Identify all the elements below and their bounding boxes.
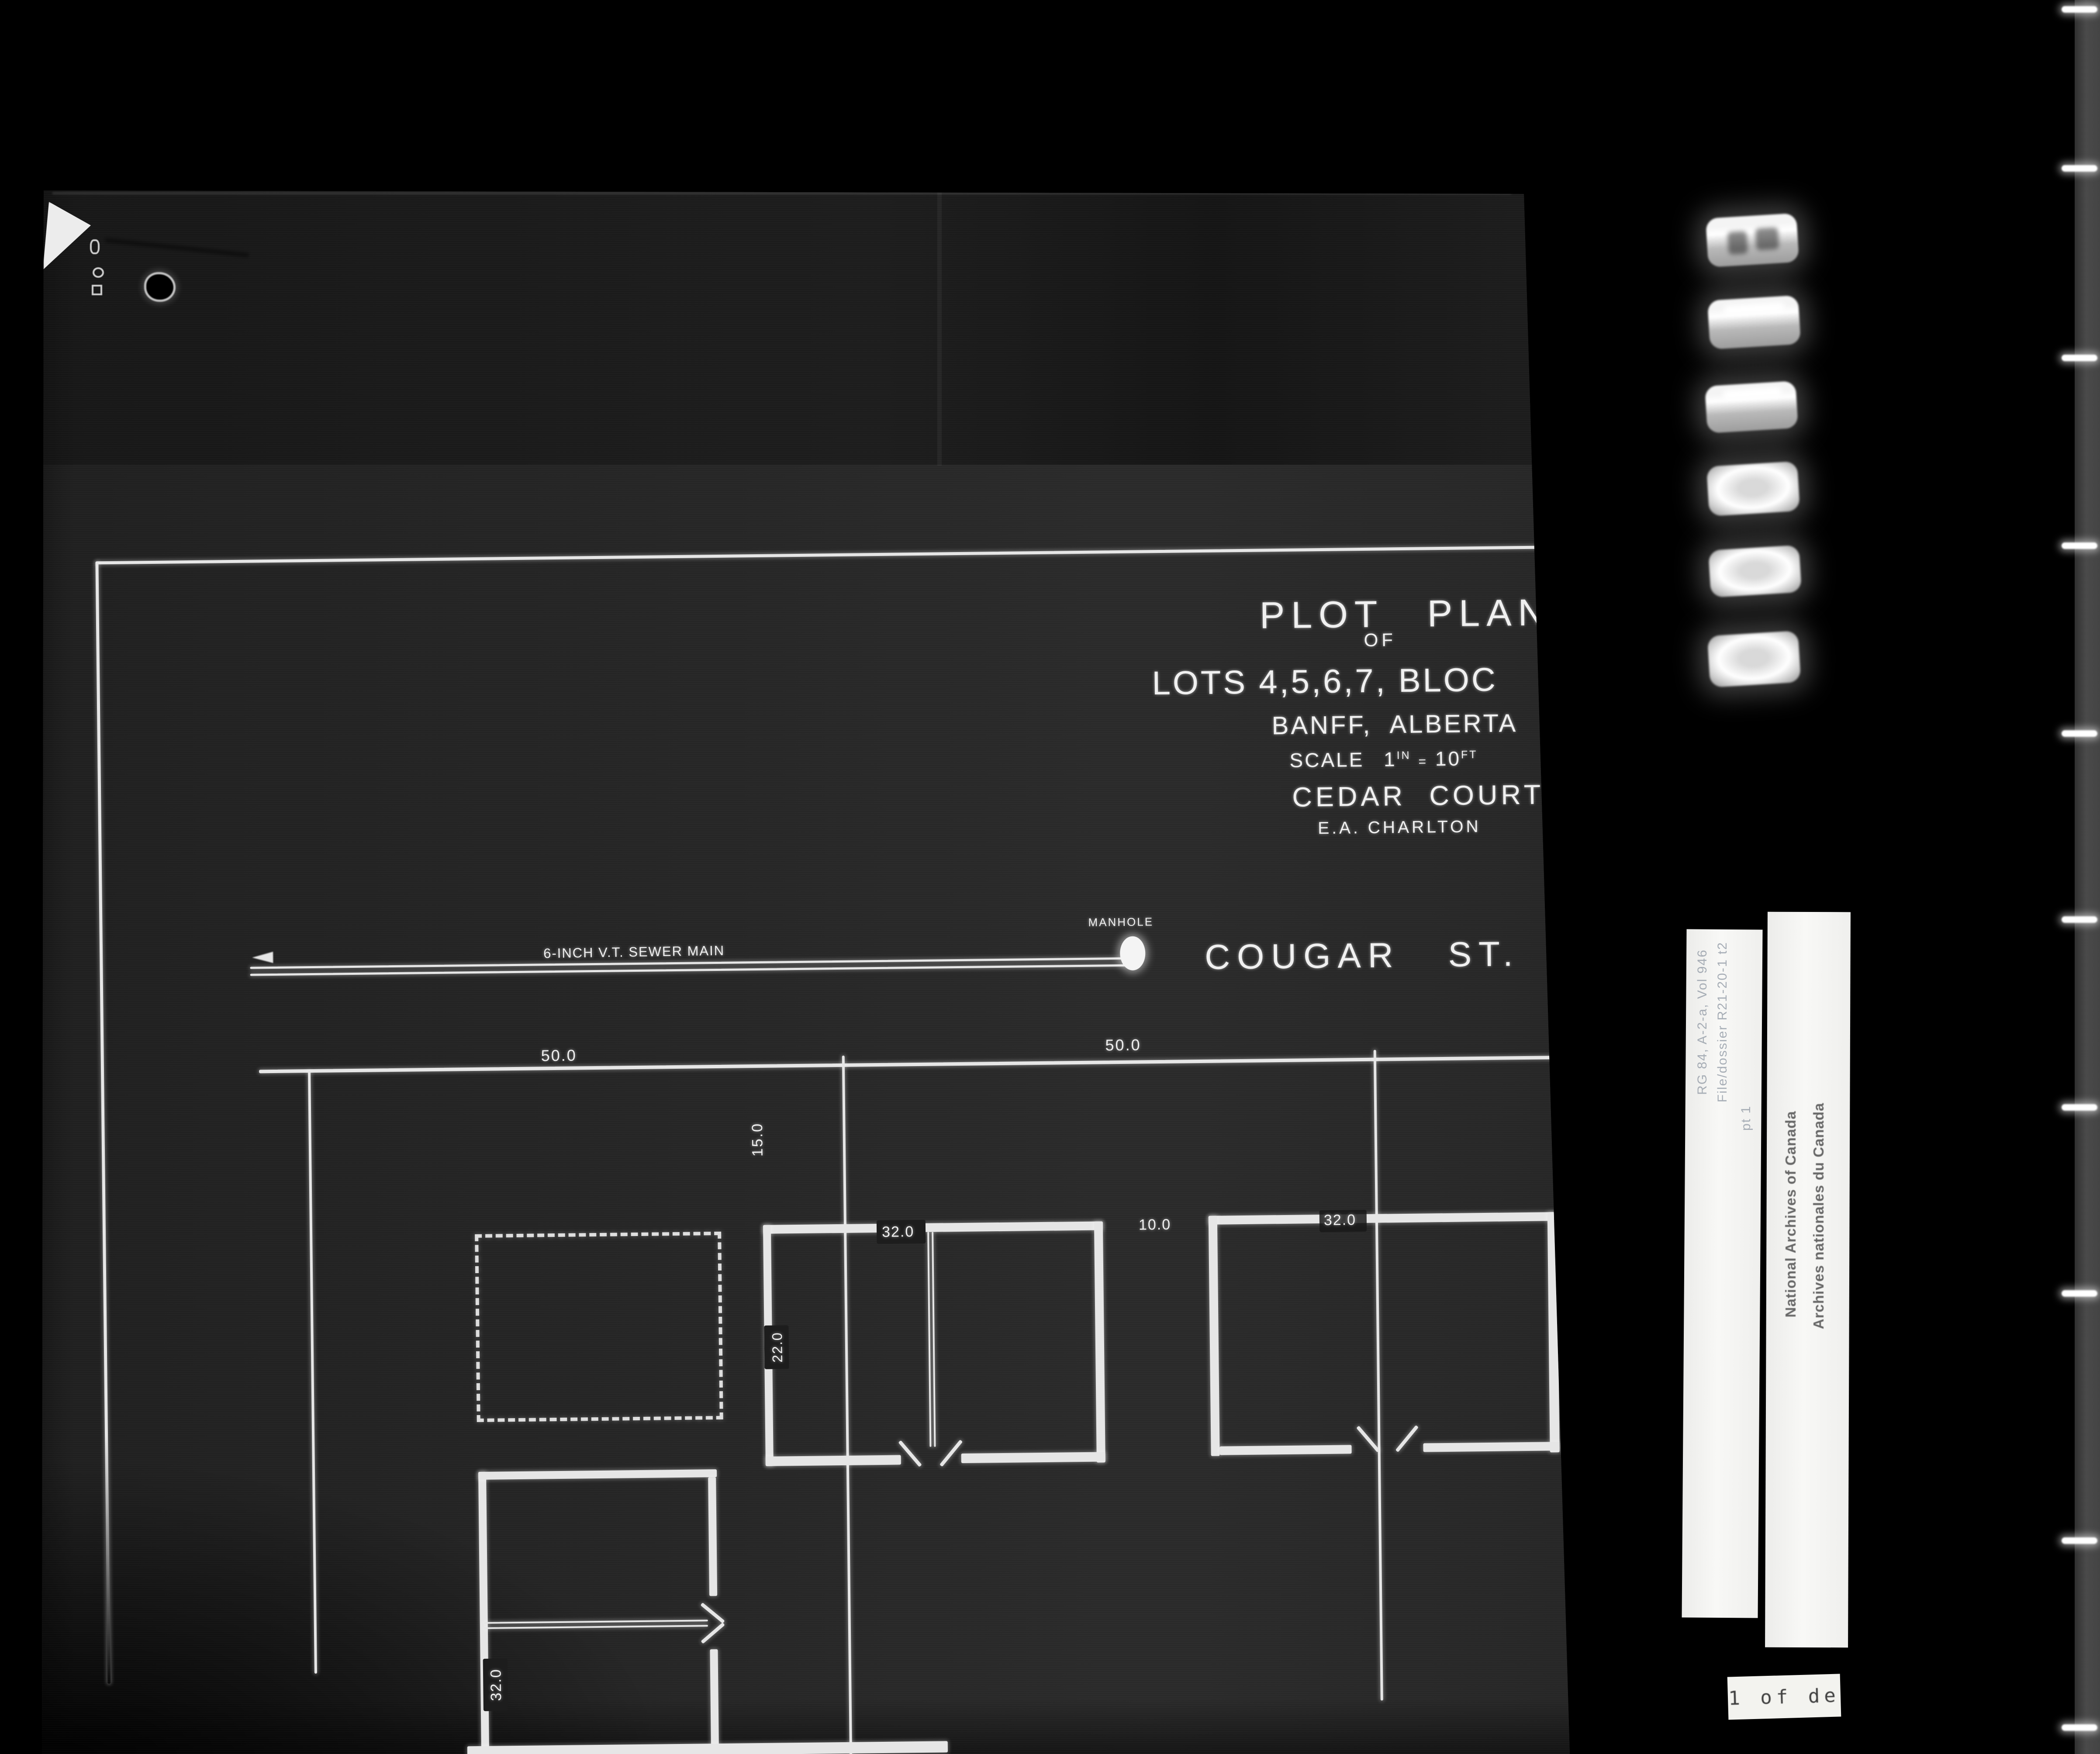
scale-equals: =: [1418, 754, 1428, 769]
page-count-text: 1 of de: [1728, 1684, 1841, 1709]
sewer-main-label: 6-INCH V.T. SEWER MAIN: [543, 943, 725, 962]
film-edge-tick: [2062, 1290, 2097, 1297]
lot-line: [842, 1056, 852, 1754]
building-partition-line: [927, 1232, 931, 1447]
frame-smudge: [1755, 227, 1779, 250]
dimension-building1-depth: 22.0: [769, 1332, 786, 1363]
lot-line: [1374, 1050, 1383, 1701]
scale-value-2: 10: [1435, 747, 1461, 770]
dimension-frontage-right: 50.0: [1105, 1036, 1141, 1055]
film-edge-tick: [2062, 1537, 2097, 1544]
film-edge-tick: [2062, 1104, 2097, 1111]
door-notch: [1356, 1426, 1380, 1452]
building-wall: [1094, 1221, 1105, 1462]
author-name: E.A. CHARLTON: [1318, 817, 1481, 838]
scale-label: SCALE: [1289, 748, 1364, 772]
scale-unit-2: FT: [1461, 749, 1478, 761]
film-frame-marker: [1707, 631, 1801, 687]
dimension-building2-width: 32.0: [1324, 1212, 1357, 1229]
building-wall: [961, 1452, 1105, 1463]
building-wall: [710, 1649, 718, 1746]
film-frame-marker: [1706, 461, 1800, 516]
frame-smudge: [1727, 231, 1748, 255]
building-wall: [708, 1477, 717, 1596]
drawing-title: PLOT PLAN: [1259, 591, 1552, 637]
film-edge-tick: [2062, 1724, 2097, 1731]
frame-streak: [1724, 302, 1785, 316]
building-wall: [1423, 1442, 1559, 1452]
archives-stamp-french: Archives nationales du Canada: [1810, 1103, 1827, 1329]
film-edge-tick: [2062, 165, 2097, 172]
door-notch: [898, 1440, 922, 1467]
building-wall: [1547, 1212, 1560, 1452]
film-edge-tick: [2062, 730, 2097, 737]
film-frame-marker: [1707, 295, 1801, 349]
service-line: [484, 1619, 708, 1624]
door-notch: [1395, 1425, 1419, 1452]
building-wall: [766, 1455, 901, 1466]
manhole-label: MANHOLE: [1088, 915, 1154, 929]
drawing-title-of: OF: [1364, 629, 1396, 651]
scale-unit-1: IN: [1396, 749, 1411, 761]
service-line: [484, 1625, 708, 1629]
dashed-building-outline: [475, 1232, 723, 1422]
boundary-line-bottom: [467, 1741, 948, 1754]
dimension-setback: 15.0: [749, 1122, 767, 1157]
building-wall: [1219, 1445, 1351, 1455]
catalog-reference-line2: File/dossier R21-20-1 t2: [1715, 942, 1730, 1102]
dimension-building-gap: 10.0: [1139, 1216, 1171, 1234]
scale-value-1: 1: [1384, 748, 1397, 770]
building-partition-line: [932, 1232, 936, 1447]
page-count-label: 1 of de: [1727, 1674, 1841, 1719]
building-wall: [1209, 1216, 1220, 1456]
dimension-frontage-left: 50.0: [541, 1046, 577, 1065]
archives-stamp-strip: [1765, 912, 1851, 1648]
film-frame-marker: [1706, 213, 1799, 267]
property-line: [259, 1056, 1567, 1073]
sewer-flow-arrow-icon: [252, 952, 273, 963]
frame-streak: [1723, 387, 1782, 400]
film-edge-tick: [2062, 916, 2097, 923]
film-frame-marker: [1708, 545, 1802, 597]
street-name: COUGAR ST.: [1205, 934, 1520, 977]
microfilm-scan: PLOT PLAN OF LOTS 4,5,6,7, BLOC BANFF, A…: [0, 0, 2100, 1754]
sheet-border-top: [96, 546, 1551, 564]
film-edge-strip: [2075, 0, 2100, 1754]
film-edge-tick: [2062, 6, 2097, 13]
drawing-scale-note: SCALE 1IN = 10FT: [1289, 746, 1478, 772]
film-frame-marker: [1705, 381, 1798, 433]
film-edge-tick: [2062, 355, 2097, 361]
building-wall: [478, 1469, 717, 1480]
archives-stamp-english: National Archives of Canada: [1782, 1111, 1799, 1317]
project-name: CEDAR COURT: [1292, 779, 1544, 813]
building-wall: [1209, 1212, 1558, 1225]
film-edge-tick: [2062, 542, 2097, 549]
sheet-border-left: [95, 561, 111, 1684]
door-notch: [939, 1440, 963, 1467]
dimension-building1-width: 32.0: [882, 1223, 915, 1241]
dimension-building3-width: 32.0: [487, 1668, 505, 1701]
catalog-reference-line3: pt 1: [1739, 1105, 1754, 1131]
drawing-title-location: BANFF, ALBERTA: [1271, 708, 1518, 740]
manhole-symbol: [1120, 936, 1146, 970]
lot-line: [308, 1071, 317, 1674]
catalog-reference-line1: RG 84, A-2-a, Vol 946: [1695, 949, 1710, 1095]
drawing-title-lots: LOTS 4,5,6,7, BLOC: [1152, 661, 1498, 703]
